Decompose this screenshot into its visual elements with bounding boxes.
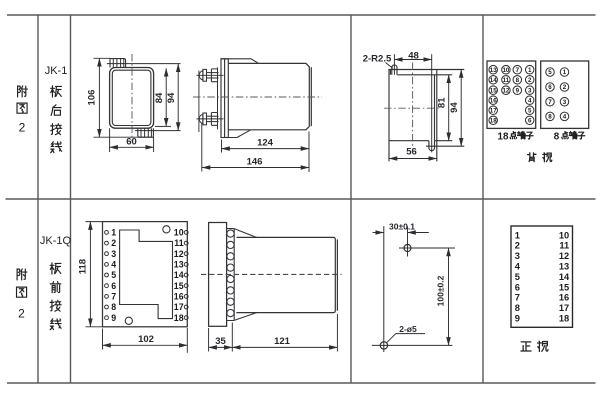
svg-text:81: 81 bbox=[437, 97, 448, 108]
svg-text:15: 15 bbox=[174, 281, 184, 291]
svg-text:60: 60 bbox=[126, 137, 137, 148]
svg-text:9: 9 bbox=[516, 87, 520, 94]
svg-text:121: 121 bbox=[274, 336, 291, 347]
svg-text:1: 1 bbox=[528, 67, 532, 74]
svg-text:14: 14 bbox=[559, 272, 570, 282]
svg-text:7: 7 bbox=[516, 67, 520, 74]
svg-text:9: 9 bbox=[111, 313, 116, 323]
svg-text:9: 9 bbox=[515, 314, 520, 324]
svg-text:5: 5 bbox=[548, 69, 552, 76]
svg-text:12: 12 bbox=[502, 87, 509, 94]
svg-text:15: 15 bbox=[490, 87, 497, 94]
svg-text:4: 4 bbox=[528, 97, 532, 104]
svg-text:13: 13 bbox=[559, 262, 569, 272]
svg-text:2: 2 bbox=[515, 241, 520, 251]
svg-text:JK-1Q: JK-1Q bbox=[40, 235, 72, 247]
svg-text:8: 8 bbox=[515, 303, 520, 313]
svg-text:1: 1 bbox=[563, 69, 567, 76]
svg-text:15: 15 bbox=[559, 282, 569, 292]
svg-text:14: 14 bbox=[174, 270, 184, 280]
svg-text:2: 2 bbox=[111, 238, 116, 248]
svg-text:35: 35 bbox=[215, 336, 226, 347]
svg-text:5: 5 bbox=[528, 107, 532, 114]
svg-text:18: 18 bbox=[498, 131, 509, 142]
svg-text:30±0.1: 30±0.1 bbox=[389, 221, 415, 231]
svg-text:6: 6 bbox=[528, 118, 532, 125]
svg-text:6: 6 bbox=[111, 281, 116, 291]
svg-text:14: 14 bbox=[490, 77, 497, 84]
svg-text:16: 16 bbox=[174, 292, 184, 302]
svg-text:11: 11 bbox=[559, 241, 569, 251]
svg-text:17: 17 bbox=[490, 107, 497, 114]
svg-text:3: 3 bbox=[528, 87, 532, 94]
svg-text:8: 8 bbox=[516, 77, 520, 84]
svg-text:8: 8 bbox=[111, 302, 116, 312]
svg-text:17: 17 bbox=[174, 302, 184, 312]
svg-text:11: 11 bbox=[503, 77, 510, 84]
svg-text:1: 1 bbox=[111, 228, 116, 238]
svg-text:94: 94 bbox=[166, 92, 177, 103]
svg-text:100±0.2: 100±0.2 bbox=[435, 275, 445, 306]
svg-text:2: 2 bbox=[528, 77, 532, 84]
svg-text:1: 1 bbox=[515, 230, 520, 240]
svg-text:6: 6 bbox=[515, 282, 520, 292]
svg-text:7: 7 bbox=[515, 293, 520, 303]
svg-text:10: 10 bbox=[174, 228, 184, 238]
svg-text:56: 56 bbox=[406, 147, 417, 158]
svg-text:3: 3 bbox=[515, 251, 520, 261]
svg-text:4: 4 bbox=[515, 262, 521, 272]
svg-text:18: 18 bbox=[559, 314, 569, 324]
svg-text:18: 18 bbox=[490, 118, 497, 125]
svg-text:4: 4 bbox=[111, 260, 116, 270]
svg-text:8: 8 bbox=[548, 114, 552, 121]
svg-text:12: 12 bbox=[174, 249, 184, 259]
svg-text:102: 102 bbox=[138, 334, 154, 345]
svg-text:5: 5 bbox=[515, 272, 520, 282]
svg-text:10: 10 bbox=[559, 230, 569, 240]
svg-text:11: 11 bbox=[174, 238, 183, 248]
svg-text:16: 16 bbox=[559, 293, 569, 303]
svg-text:16: 16 bbox=[490, 97, 497, 104]
svg-text:124: 124 bbox=[257, 137, 274, 148]
svg-text:106: 106 bbox=[87, 90, 98, 106]
svg-text:12: 12 bbox=[559, 251, 569, 261]
svg-text:2-R2.5: 2-R2.5 bbox=[363, 53, 392, 64]
svg-text:10: 10 bbox=[502, 67, 509, 74]
svg-text:2: 2 bbox=[563, 84, 567, 91]
svg-text:5: 5 bbox=[111, 270, 116, 280]
svg-text:18: 18 bbox=[174, 313, 184, 323]
svg-text:146: 146 bbox=[247, 156, 263, 167]
svg-text:6: 6 bbox=[548, 84, 552, 91]
svg-text:13: 13 bbox=[490, 67, 497, 74]
svg-text:84: 84 bbox=[154, 92, 165, 103]
svg-text:7: 7 bbox=[548, 99, 552, 106]
svg-text:4: 4 bbox=[563, 114, 567, 121]
svg-text:118: 118 bbox=[78, 259, 89, 274]
svg-text:17: 17 bbox=[559, 303, 569, 313]
svg-text:48: 48 bbox=[408, 50, 419, 61]
svg-text:2: 2 bbox=[19, 121, 26, 135]
svg-text:2: 2 bbox=[18, 307, 25, 321]
svg-text:3: 3 bbox=[563, 99, 567, 106]
svg-text:8: 8 bbox=[554, 131, 560, 142]
svg-text:13: 13 bbox=[174, 260, 184, 270]
svg-text:JK-1: JK-1 bbox=[45, 65, 68, 77]
svg-text:94: 94 bbox=[449, 102, 460, 113]
svg-text:7: 7 bbox=[111, 292, 116, 302]
svg-text:2-ø5: 2-ø5 bbox=[399, 324, 417, 334]
svg-text:3: 3 bbox=[111, 249, 116, 259]
